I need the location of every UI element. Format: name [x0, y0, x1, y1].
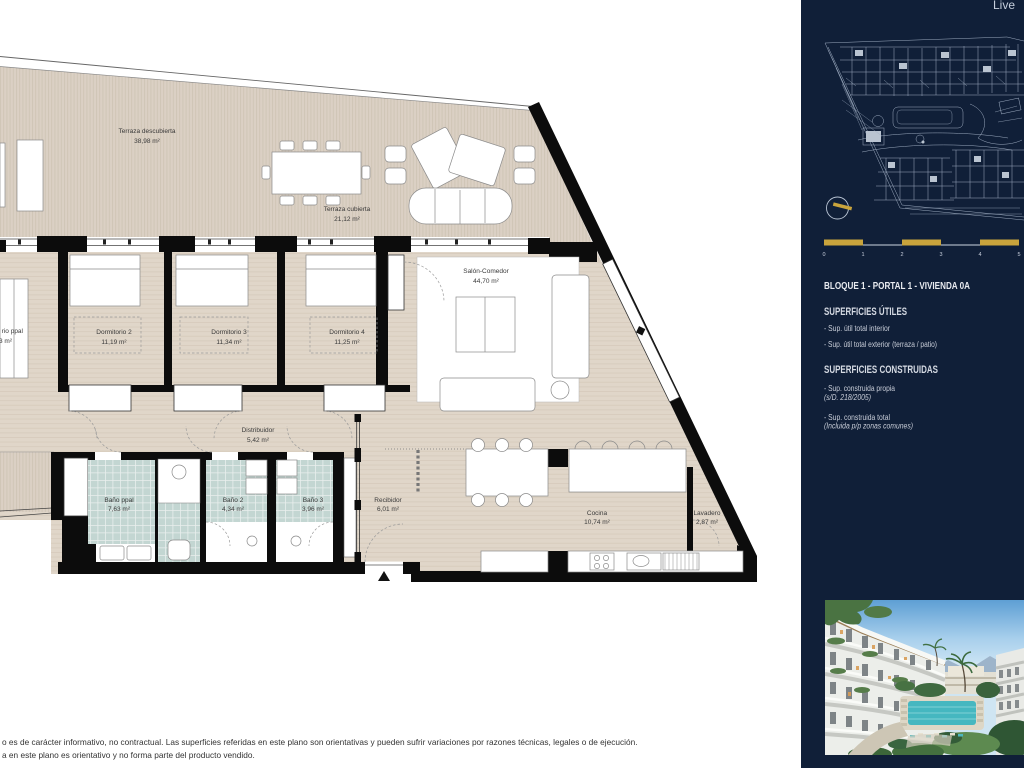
svg-text:5: 5: [1017, 252, 1020, 258]
svg-text:2,87 m²: 2,87 m²: [696, 519, 719, 526]
svg-text:Baño 3: Baño 3: [303, 497, 324, 504]
svg-text:- Sup. útil total interior: - Sup. útil total interior: [824, 324, 890, 333]
svg-text:- Sup. construida propia: - Sup. construida propia: [824, 384, 895, 393]
svg-text:Cocina: Cocina: [587, 510, 608, 517]
svg-text:(Incluida p/p zonas comunes): (Incluida p/p zonas comunes): [824, 422, 913, 431]
svg-text:rio ppal: rio ppal: [2, 328, 24, 335]
svg-text:SUPERFICIES CONSTRUIDAS: SUPERFICIES CONSTRUIDAS: [824, 364, 938, 376]
svg-text:7,63 m²: 7,63 m²: [108, 506, 131, 513]
svg-text:1: 1: [861, 252, 864, 258]
svg-text:6,01 m²: 6,01 m²: [377, 506, 400, 513]
svg-text:4: 4: [978, 252, 981, 258]
svg-text:Terraza cubierta: Terraza cubierta: [324, 206, 371, 213]
svg-text:BLOQUE 1 - PORTAL 1 - VIVIENDA: BLOQUE 1 - PORTAL 1 - VIVIENDA 0A: [824, 281, 970, 292]
svg-text:Dormitorio 4: Dormitorio 4: [329, 329, 365, 336]
svg-text:4,34 m²: 4,34 m²: [222, 506, 245, 513]
svg-text:SUPERFICIES ÚTILES: SUPERFICIES ÚTILES: [824, 305, 907, 318]
svg-text:3: 3: [939, 252, 942, 258]
svg-text:Distribuidor: Distribuidor: [242, 427, 276, 434]
svg-text:3,96 m²: 3,96 m²: [302, 506, 325, 513]
svg-text:Baño 2: Baño 2: [223, 497, 244, 504]
svg-text:11,25 m²: 11,25 m²: [334, 339, 360, 346]
svg-text:11,34 m²: 11,34 m²: [216, 339, 242, 346]
svg-text:0: 0: [822, 252, 825, 258]
svg-text:Recibidor: Recibidor: [374, 497, 402, 504]
svg-text:21,12 m²: 21,12 m²: [334, 216, 360, 223]
svg-text:a en este plano es orientativo: a en este plano es orientativo y no form…: [2, 750, 255, 760]
svg-text:Baño ppal: Baño ppal: [104, 497, 134, 504]
svg-text:10,74 m²: 10,74 m²: [584, 519, 610, 526]
svg-text:- Sup. útil total exterior (te: - Sup. útil total exterior (terraza / pa…: [824, 340, 937, 349]
svg-text:11,19 m²: 11,19 m²: [101, 339, 127, 346]
svg-text:44,70 m²: 44,70 m²: [473, 278, 499, 285]
svg-text:Lavadero: Lavadero: [693, 510, 720, 517]
svg-text:o es de carácter informativo,: o es de carácter informativo, no contrac…: [2, 737, 638, 747]
svg-text:Terraza descubierta: Terraza descubierta: [118, 128, 175, 135]
svg-text:3 m²: 3 m²: [0, 338, 13, 345]
svg-text:38,98 m²: 38,98 m²: [134, 138, 160, 145]
svg-text:2: 2: [900, 252, 903, 258]
svg-text:Salón-Comedor: Salón-Comedor: [463, 268, 509, 275]
svg-text:5,42 m²: 5,42 m²: [247, 437, 270, 444]
svg-text:Dormitorio 2: Dormitorio 2: [96, 329, 132, 336]
svg-text:(s/D. 218/2005): (s/D. 218/2005): [824, 393, 871, 402]
svg-text:Live: Live: [993, 0, 1015, 12]
svg-text:Dormitorio 3: Dormitorio 3: [211, 329, 247, 336]
